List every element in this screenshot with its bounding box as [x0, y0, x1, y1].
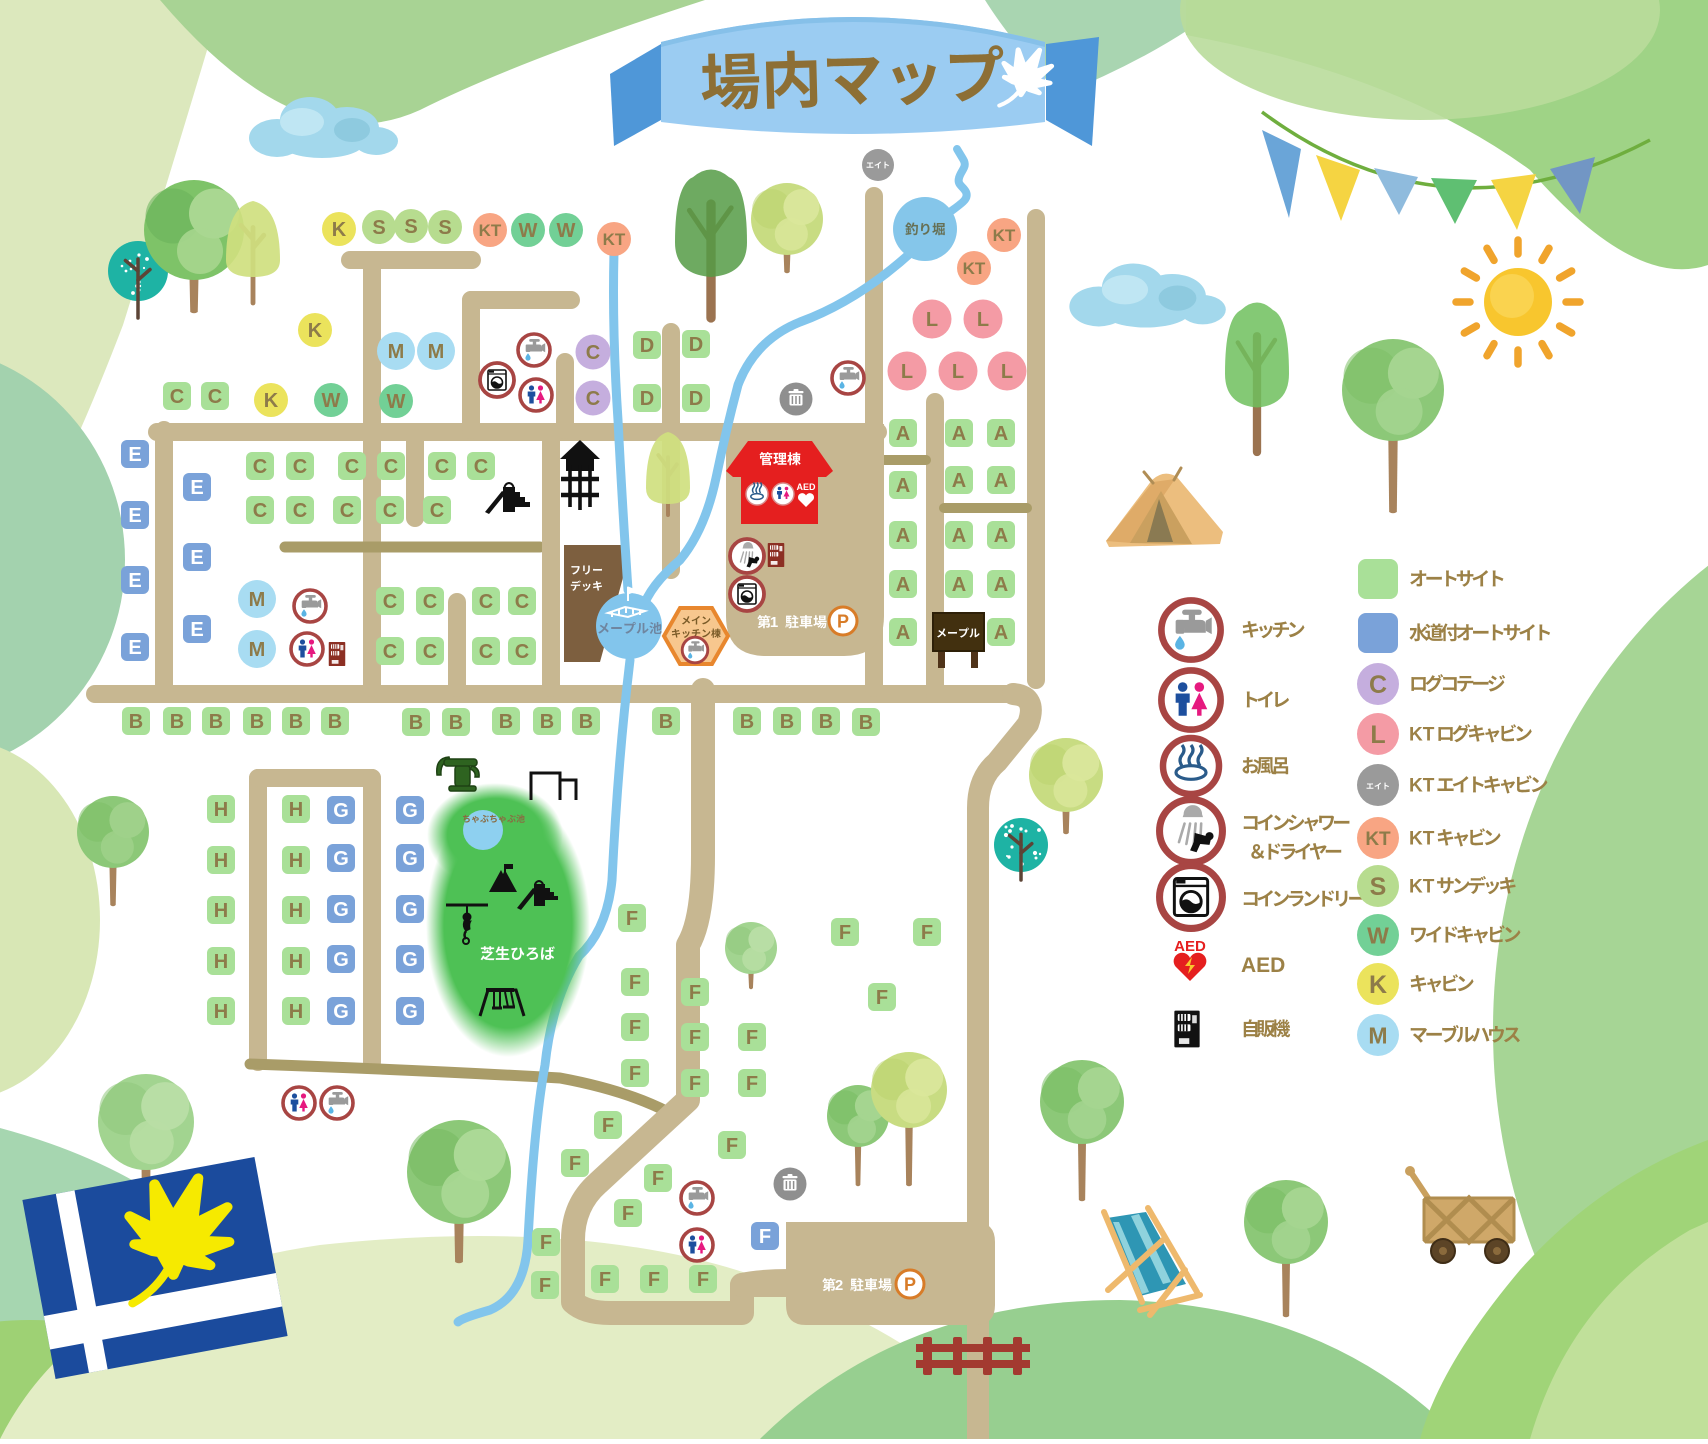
svg-text:L: L [952, 361, 964, 383]
svg-text:C: C [253, 456, 267, 478]
svg-text:C: C [474, 456, 488, 478]
svg-text:S: S [372, 217, 385, 239]
svg-text:G: G [333, 1001, 349, 1023]
svg-text:C: C [423, 591, 437, 613]
svg-text:B: B [209, 711, 223, 733]
svg-text:G: G [333, 800, 349, 822]
svg-text:S: S [1370, 873, 1387, 901]
svg-text:F: F [689, 1073, 701, 1095]
svg-text:B: B [170, 711, 184, 733]
svg-text:KT: KT [1409, 877, 1435, 898]
svg-text:B: B [250, 711, 264, 733]
svg-text:F: F [689, 1027, 701, 1049]
svg-text:S: S [438, 217, 451, 239]
svg-text:F: F [726, 1135, 738, 1157]
svg-text:KT: KT [1409, 725, 1435, 746]
svg-text:G: G [333, 949, 349, 971]
svg-text:B: B [859, 712, 873, 734]
svg-text:2: 2 [835, 1277, 843, 1294]
svg-text:P: P [904, 1275, 916, 1295]
svg-text:C: C [384, 456, 398, 478]
svg-text:M: M [1368, 1022, 1387, 1048]
svg-text:H: H [289, 850, 303, 872]
svg-text:F: F [629, 1063, 641, 1085]
svg-text:C: C [208, 386, 222, 408]
svg-text:F: F [599, 1269, 611, 1291]
svg-text:KT: KT [1409, 776, 1435, 797]
svg-text:A: A [896, 423, 910, 445]
svg-text:C: C [383, 591, 397, 613]
svg-text:B: B [819, 711, 833, 733]
svg-text:F: F [539, 1275, 551, 1297]
svg-text:M: M [249, 589, 266, 611]
svg-text:A: A [994, 622, 1008, 644]
svg-text:H: H [214, 1001, 228, 1023]
svg-text:M: M [388, 341, 405, 363]
svg-text:B: B [409, 712, 423, 734]
svg-text:S: S [404, 216, 417, 238]
svg-text:B: B [579, 711, 593, 733]
svg-text:H: H [214, 799, 228, 821]
svg-text:F: F [622, 1203, 634, 1225]
svg-text:W: W [519, 220, 538, 242]
svg-text:B: B [449, 712, 463, 734]
svg-text:C: C [586, 342, 600, 364]
svg-text:F: F [648, 1269, 660, 1291]
svg-text:KT: KT [479, 221, 502, 240]
svg-text:K: K [308, 320, 323, 342]
svg-text:F: F [839, 922, 851, 944]
svg-text:A: A [952, 470, 966, 492]
svg-text:C: C [423, 641, 437, 663]
svg-text:AED: AED [796, 482, 816, 492]
svg-text:L: L [977, 309, 989, 331]
svg-text:C: C [515, 641, 529, 663]
svg-text:E: E [128, 570, 141, 592]
svg-text:F: F [746, 1073, 758, 1095]
svg-text:F: F [921, 922, 933, 944]
svg-text:H: H [289, 900, 303, 922]
svg-text:C: C [253, 500, 267, 522]
svg-text:A: A [896, 475, 910, 497]
svg-text:C: C [586, 388, 600, 410]
svg-text:E: E [128, 505, 141, 527]
svg-text:G: G [402, 949, 418, 971]
svg-text:F: F [629, 972, 641, 994]
svg-text:KT: KT [1409, 829, 1435, 850]
svg-text:A: A [896, 525, 910, 547]
svg-text:A: A [994, 470, 1008, 492]
svg-text:F: F [876, 987, 888, 1009]
svg-text:A: A [952, 574, 966, 596]
svg-text:A: A [896, 574, 910, 596]
svg-text:D: D [689, 334, 703, 356]
svg-text:H: H [214, 900, 228, 922]
svg-text:W: W [322, 390, 341, 412]
svg-text:C: C [383, 641, 397, 663]
svg-text:A: A [952, 423, 966, 445]
svg-text:KT: KT [603, 230, 626, 249]
svg-text:KT: KT [1365, 829, 1391, 850]
svg-text:C: C [515, 591, 529, 613]
svg-text:A: A [994, 525, 1008, 547]
svg-text:W: W [387, 391, 406, 413]
svg-text:K: K [1369, 971, 1387, 999]
svg-text:B: B [740, 711, 754, 733]
svg-text:B: B [659, 711, 673, 733]
svg-text:F: F [569, 1153, 581, 1175]
svg-text:C: C [479, 591, 493, 613]
svg-text:A: A [952, 525, 966, 547]
svg-text:L: L [926, 309, 938, 331]
svg-text:H: H [214, 951, 228, 973]
svg-text:C: C [435, 456, 449, 478]
svg-text:W: W [557, 220, 576, 242]
svg-text:G: G [333, 899, 349, 921]
svg-text:C: C [1369, 671, 1387, 699]
svg-text:G: G [333, 848, 349, 870]
svg-text:L: L [1001, 361, 1013, 383]
svg-text:C: C [293, 456, 307, 478]
svg-text:F: F [746, 1027, 758, 1049]
svg-text:C: C [340, 500, 354, 522]
svg-text:F: F [629, 1017, 641, 1039]
svg-text:M: M [428, 341, 445, 363]
svg-text:H: H [289, 799, 303, 821]
svg-text:AED: AED [1174, 938, 1206, 955]
svg-text:B: B [499, 711, 513, 733]
svg-text:K: K [332, 219, 347, 241]
svg-text:C: C [170, 386, 184, 408]
svg-text:D: D [640, 335, 654, 357]
svg-text:A: A [994, 574, 1008, 596]
svg-text:C: C [293, 500, 307, 522]
svg-text:D: D [640, 388, 654, 410]
svg-text:F: F [540, 1232, 552, 1254]
svg-text:H: H [214, 850, 228, 872]
svg-text:P: P [837, 612, 849, 632]
svg-text:AED: AED [1241, 954, 1285, 977]
svg-text:L: L [901, 361, 913, 383]
svg-text:F: F [689, 982, 701, 1004]
svg-text:C: C [479, 641, 493, 663]
svg-text:W: W [1367, 922, 1389, 948]
svg-text:E: E [128, 444, 141, 466]
svg-text:M: M [249, 639, 266, 661]
svg-text:A: A [994, 423, 1008, 445]
svg-text:E: E [190, 477, 203, 499]
svg-text:F: F [652, 1168, 664, 1190]
svg-text:F: F [697, 1269, 709, 1291]
svg-text:KT: KT [963, 259, 986, 278]
svg-text:C: C [383, 500, 397, 522]
svg-text:F: F [759, 1226, 771, 1248]
svg-text:F: F [602, 1115, 614, 1137]
svg-text:G: G [402, 800, 418, 822]
svg-text:E: E [128, 637, 141, 659]
svg-text:K: K [264, 390, 279, 412]
svg-text:A: A [896, 622, 910, 644]
svg-text:B: B [540, 711, 554, 733]
svg-text:B: B [129, 711, 143, 733]
svg-text:1: 1 [770, 614, 778, 631]
svg-text:G: G [402, 1001, 418, 1023]
svg-text:E: E [190, 619, 203, 641]
svg-text:B: B [289, 711, 303, 733]
svg-text:E: E [190, 547, 203, 569]
svg-text:F: F [626, 908, 638, 930]
svg-text:L: L [1370, 721, 1385, 749]
svg-text:C: C [345, 456, 359, 478]
svg-text:C: C [430, 500, 444, 522]
svg-text:B: B [328, 711, 342, 733]
svg-text:H: H [289, 951, 303, 973]
svg-text:H: H [289, 1001, 303, 1023]
svg-text:B: B [780, 711, 794, 733]
svg-text:G: G [402, 848, 418, 870]
svg-text:D: D [689, 388, 703, 410]
svg-text:KT: KT [993, 226, 1016, 245]
svg-text:G: G [402, 899, 418, 921]
